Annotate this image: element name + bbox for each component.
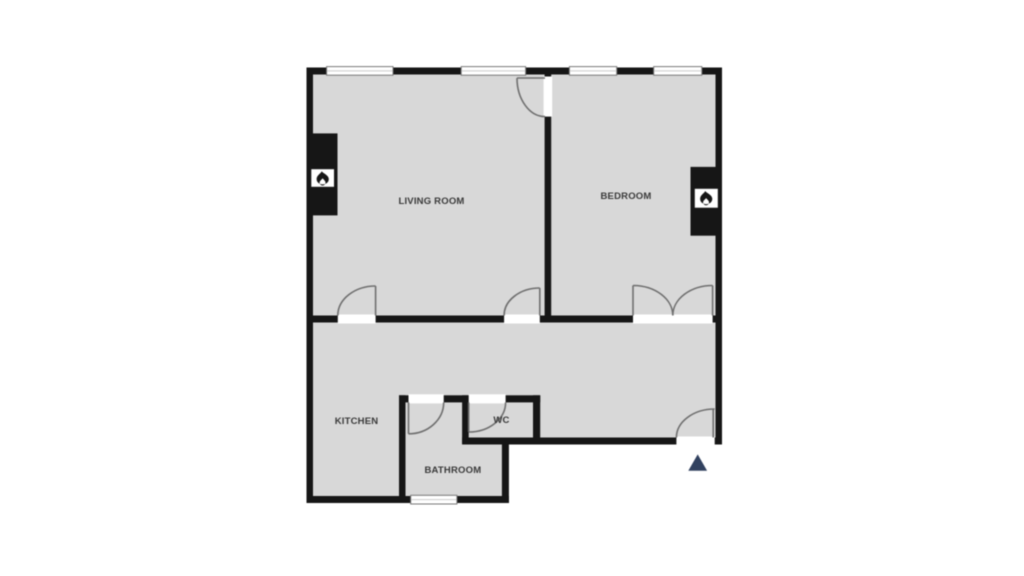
svg-text:LIVING ROOM: LIVING ROOM [398,196,464,207]
svg-text:WC: WC [493,415,509,426]
svg-text:BEDROOM: BEDROOM [600,191,651,202]
svg-text:BATHROOM: BATHROOM [424,465,481,476]
svg-text:KITCHEN: KITCHEN [335,416,379,427]
